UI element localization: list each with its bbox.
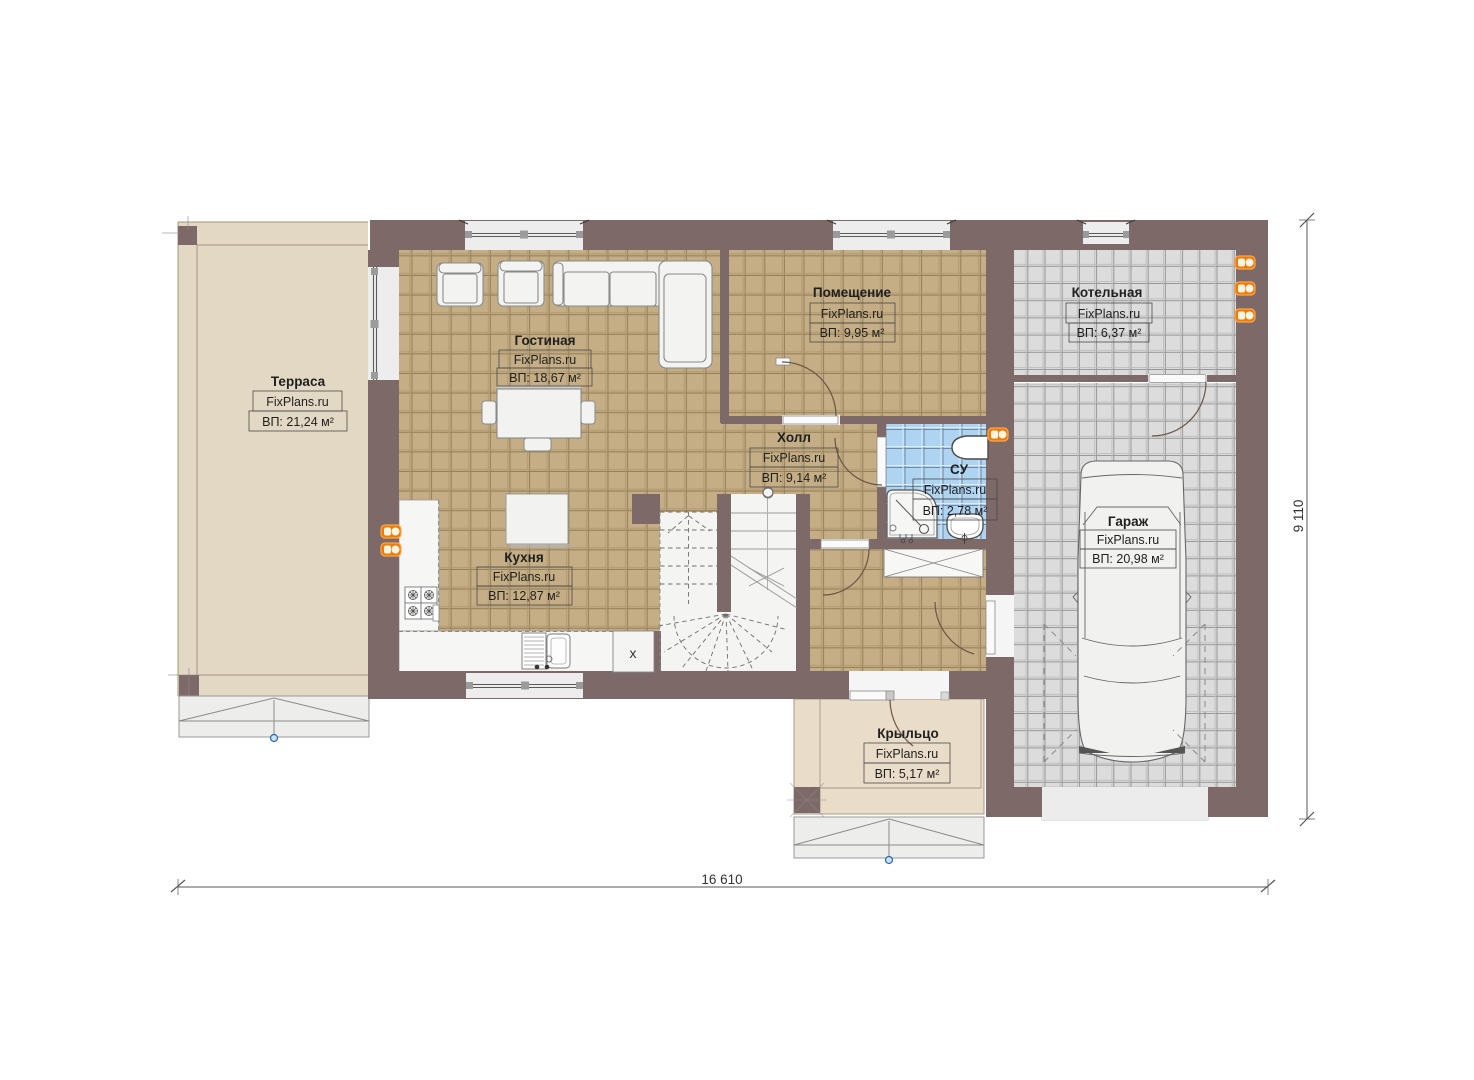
svg-text:Гостиная: Гостиная	[514, 333, 575, 348]
svg-text:ВП: 20,98 м²: ВП: 20,98 м²	[1092, 552, 1164, 566]
svg-text:ВП: 6,37 м²: ВП: 6,37 м²	[1077, 326, 1142, 340]
svg-text:FixPlans.ru: FixPlans.ru	[763, 451, 826, 465]
svg-text:FixPlans.ru: FixPlans.ru	[266, 395, 329, 409]
svg-text:FixPlans.ru: FixPlans.ru	[821, 307, 884, 321]
svg-text:ВП: 12,87 м²: ВП: 12,87 м²	[488, 589, 560, 603]
svg-text:x: x	[630, 645, 637, 661]
svg-text:FixPlans.ru: FixPlans.ru	[1097, 533, 1160, 547]
svg-text:FixPlans.ru: FixPlans.ru	[493, 570, 556, 584]
svg-text:FixPlans.ru: FixPlans.ru	[1078, 307, 1141, 321]
svg-text:FixPlans.ru: FixPlans.ru	[514, 353, 577, 367]
svg-text:16 610: 16 610	[701, 872, 742, 887]
svg-text:9 110: 9 110	[1291, 500, 1306, 533]
svg-text:Кухня: Кухня	[504, 550, 543, 565]
svg-text:СУ: СУ	[950, 462, 969, 477]
svg-text:Терраса: Терраса	[271, 374, 326, 389]
svg-text:FixPlans.ru: FixPlans.ru	[924, 483, 987, 497]
svg-text:ВП: 5,17 м²: ВП: 5,17 м²	[875, 767, 940, 781]
svg-text:FixPlans.ru: FixPlans.ru	[876, 747, 939, 761]
svg-text:ВП: 9,95 м²: ВП: 9,95 м²	[820, 326, 885, 340]
svg-text:Помещение: Помещение	[813, 285, 892, 300]
svg-text:ВП: 9,14 м²: ВП: 9,14 м²	[762, 471, 827, 485]
svg-text:Крыльцо: Крыльцо	[877, 726, 938, 741]
svg-text:Холл: Холл	[777, 430, 811, 445]
svg-text:ВП: 2,78 м²: ВП: 2,78 м²	[923, 504, 988, 518]
svg-text:ВП: 21,24 м²: ВП: 21,24 м²	[262, 415, 334, 429]
svg-text:ВП: 18,67 м²: ВП: 18,67 м²	[509, 371, 581, 385]
svg-text:Гараж: Гараж	[1108, 514, 1149, 529]
svg-text:Котельная: Котельная	[1072, 285, 1143, 300]
